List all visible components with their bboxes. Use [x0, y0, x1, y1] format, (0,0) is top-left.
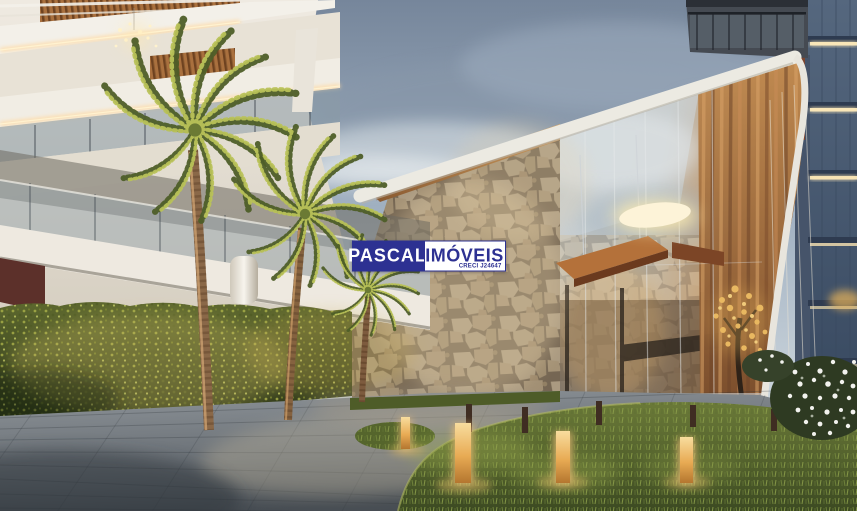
watermark-creci-number: CRECI J24647	[459, 263, 502, 269]
balcony-glass-railing	[690, 15, 804, 48]
round-column	[230, 256, 258, 304]
property-rendering: PASCAL IMÓVEIS CRECI J24647	[0, 0, 857, 511]
watermark-logo: PASCAL IMÓVEIS CRECI J24647	[352, 240, 506, 271]
watermark-brand-primary: PASCAL	[352, 240, 424, 271]
watermark-brand-secondary: IMÓVEIS CRECI J24647	[424, 240, 506, 271]
